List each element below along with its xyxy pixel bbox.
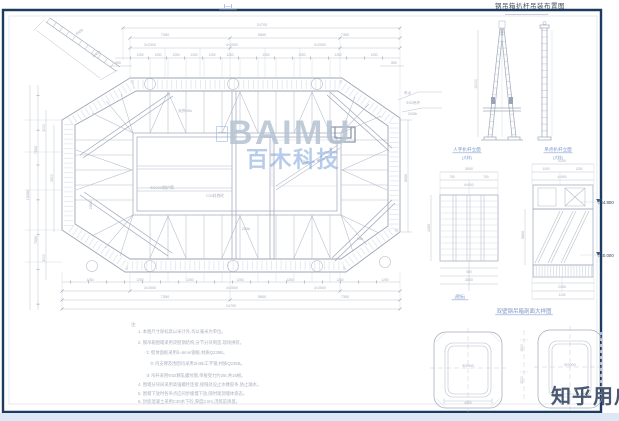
annotation-text: 4000 — [464, 401, 472, 405]
annotation-text: 2Ⅰ45b — [89, 201, 93, 210]
annotation-text: 1250 — [226, 53, 233, 57]
annotation-text: 注: — [131, 321, 137, 328]
cad-linework: Ⅰ—Ⅰ247007350580073503×25004×25003×250012… — [0, 0, 619, 421]
annotation-text: 双壁钢吊箱剖面大样图 — [496, 307, 552, 315]
annotation-text: 1250 — [381, 278, 388, 282]
annotation-text: 1250 — [575, 167, 582, 171]
annotation-text: 4200 — [427, 224, 431, 232]
annotation-text: ② 内支撑及围囹均采用2Ⅰ45b工字钢,材质Q235B。 — [150, 360, 245, 367]
annotation-text: 3×2500 — [144, 286, 156, 290]
annotation-text: 吊点扒杆立面 — [544, 146, 572, 153]
annotation-layer: Ⅰ—Ⅰ247007350580073503×25004×25003×250012… — [26, 4, 614, 405]
annotation-text: 1250 — [336, 278, 343, 282]
annotation-text: 500 — [466, 270, 472, 274]
annotation-text: 2Ⅰ56b — [301, 160, 310, 164]
roller-circles — [87, 79, 391, 272]
annotation-text: 24700 — [257, 23, 268, 27]
annotation-text: Φ2000钢护筒 — [150, 184, 174, 190]
annotation-text: 1250 — [136, 278, 143, 282]
annotation-text: 1250 — [208, 53, 215, 57]
annotation-text: 1250 — [262, 53, 269, 57]
annotation-text: 2Ⅰ45b — [408, 112, 417, 116]
annotation-text: (大样) — [462, 155, 473, 160]
annotation-text: 7350 — [341, 295, 349, 299]
annotation-text: Ⅰ45b — [357, 237, 364, 241]
annotation-text: 2250 — [558, 285, 566, 289]
wall-panel-section — [431, 172, 498, 291]
annotation-text: 7350 — [161, 295, 169, 299]
annotation-text: 1250 — [286, 278, 293, 282]
annotation-text: 1. 本图尺寸除标高以米计外,均以毫米为单位。 — [138, 328, 226, 335]
annotation-text: 5800 — [258, 295, 266, 299]
annotation-text: 3×2500 — [144, 43, 156, 47]
annotation-text: 人字扒杆立面 — [453, 146, 481, 153]
annotation-text: 1500 — [520, 344, 524, 352]
annotation-text: 850 — [115, 61, 121, 65]
annotation-text: 2250 — [558, 159, 566, 163]
annotation-text: Φ2500 — [564, 363, 575, 367]
derrick-arm — [34, 18, 120, 80]
annotation-text: 3000 — [42, 254, 46, 262]
annotation-text: 2200 — [520, 376, 524, 384]
annotation-text: Ⅰ—Ⅰ — [224, 4, 233, 10]
annotation-text: 1250 — [186, 278, 193, 282]
annotation-text: 1125 — [559, 293, 566, 297]
annotation-text: 7350 — [161, 33, 169, 37]
annotation-text: ③ 吊杆采用Φ32精轧螺纹钢,单根受力约25t,共16根。 — [146, 372, 245, 379]
annotation-text: 8000 — [404, 174, 408, 182]
annotation-text: ▽40.000 — [597, 253, 614, 258]
annotation-text: 4. 围堰分块间采用高强螺栓连接,接缝处设止水橡胶条,防止漏水。 — [138, 381, 261, 388]
braced-section — [525, 164, 601, 299]
annotation-text: 3000 — [465, 167, 473, 171]
annotation-text: 5800 — [258, 33, 266, 37]
annotation-text: 3000 — [465, 278, 473, 282]
annotation-text: 1250 — [136, 53, 143, 57]
plan-view — [62, 78, 400, 272]
annotation-text: 4×2500 — [226, 286, 238, 290]
annotation-text: 5. 围堰下放时各吊点应同步缓慢下放,随时观测堰体姿态。 — [138, 390, 247, 397]
annotation-text: (壁板) — [455, 293, 466, 299]
annotation-text: 750 — [449, 175, 455, 179]
annotation-text: 15000 — [26, 190, 30, 201]
annotation-text: 12000 — [474, 79, 478, 89]
annotation-text: 2. 钢吊箱围堰采用双壁钢结构,分节分块制造,现场拼装。 — [138, 339, 244, 346]
annotation-text: Φ32吊杆 — [406, 100, 420, 105]
annotation-text: 750 — [483, 175, 489, 179]
annotation-text: 24700 — [226, 304, 237, 308]
pier-section-details — [430, 326, 604, 412]
annotation-text: Φ2500 — [462, 364, 473, 368]
annotation-text: 2500 — [50, 174, 54, 182]
annotation-text: ① 壁体面板采用δ=6mm钢板,材质Q235B。 — [146, 349, 227, 356]
annotation-text: 850 — [391, 61, 397, 65]
annotation-text: 4×2500 — [226, 43, 238, 47]
annotation-text: 7500 — [34, 236, 38, 244]
annotation-text: 6. 封底混凝土采用C30水下砼,厚度2.0m,浇筑前清基。 — [138, 398, 240, 405]
annotation-text: 6×500 — [465, 183, 474, 187]
annotation-text: 1250 — [334, 53, 341, 57]
annotation-text: 2Ⅰ45b — [242, 227, 251, 231]
annotation-text: 7500 — [34, 146, 38, 154]
annotation-text: 吊点 — [404, 90, 412, 95]
annotation-text: 3×2500 — [314, 286, 326, 290]
drawing-sheet: Ⅰ—Ⅰ247007350580073503×25004×25003×250012… — [0, 0, 619, 421]
annotation-text: 1000 — [542, 167, 549, 171]
annotation-text: 1250 — [190, 53, 197, 57]
annotation-text: 1250 — [154, 53, 161, 57]
annotation-text: ▽44.800 — [597, 200, 614, 205]
annotation-text: 1250 — [236, 278, 243, 282]
annotation-text: 7350 — [341, 33, 349, 37]
annotation-text: 双拼Ⅰ45b — [178, 108, 192, 113]
annotation-text: 1250 — [370, 53, 377, 57]
annotation-text: 3000 — [42, 124, 46, 132]
annotation-text: 4×550 — [558, 175, 567, 179]
annotation-text: 1250 — [172, 53, 179, 57]
annotation-text: 1250 — [298, 53, 305, 57]
annotation-text: 5600 — [521, 231, 525, 239]
annotation-text: 3×2500 — [314, 43, 326, 47]
annotation-text: C30封底砼 — [206, 193, 225, 198]
derrick-elevations — [478, 21, 552, 140]
annotation-text: 4500 — [75, 28, 84, 36]
annotation-text: 1250 — [86, 278, 93, 282]
